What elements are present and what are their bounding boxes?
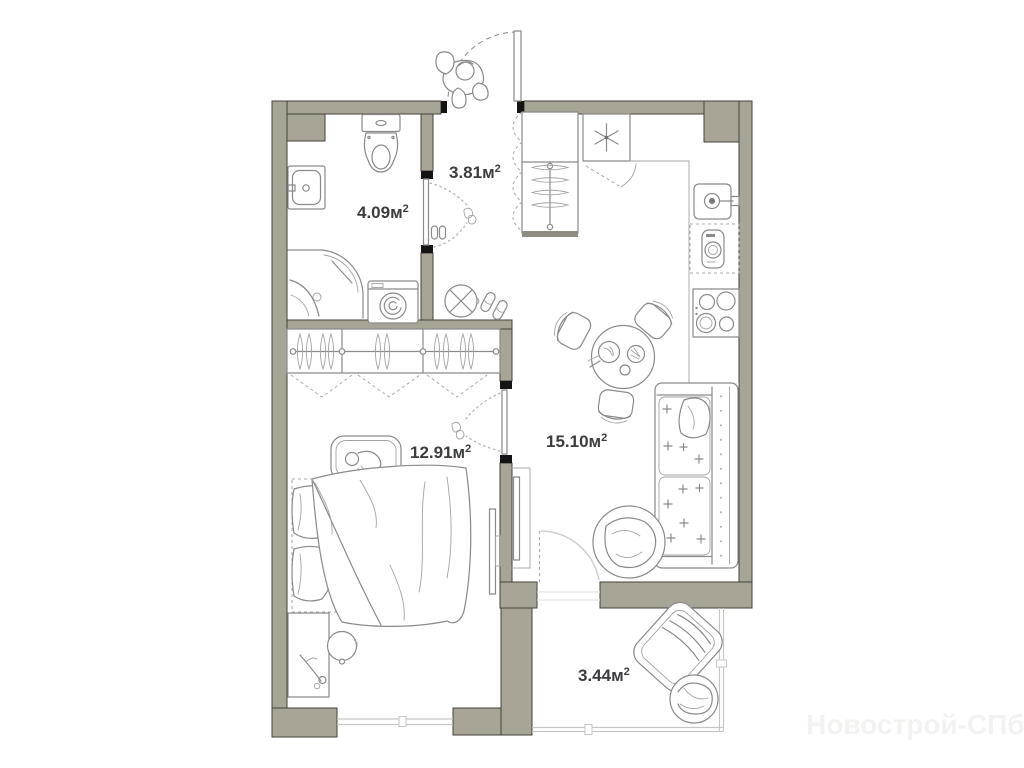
bathroom-door	[424, 179, 477, 247]
stool-icon	[445, 285, 479, 317]
double-bed-icon	[292, 465, 471, 626]
closet-doors	[513, 112, 522, 231]
wardrobe-icon	[287, 329, 500, 397]
bed-blanket	[312, 465, 471, 626]
kitchen-sink-icon	[694, 184, 739, 219]
washing-machine-icon	[368, 281, 418, 323]
hallway-area-label: 3.81м2	[449, 163, 501, 182]
dining-chair	[549, 307, 593, 352]
entrance-door-leaf	[514, 31, 521, 101]
bathroom-door-leaf	[424, 179, 429, 245]
wardrobe-folding-doors	[291, 375, 487, 397]
person-arm-left	[436, 52, 454, 74]
sofa-icon	[655, 383, 738, 568]
balcony-door	[537, 531, 600, 600]
slippers-icon	[479, 291, 508, 321]
floor-plan-page: 4.09м2 3.81м2 12.91м2 15.10м2 3.44м2 Нов…	[0, 0, 1024, 768]
sofa-pillow	[679, 398, 710, 438]
tv-bedroom-icon	[490, 509, 501, 594]
shoes-icon	[464, 208, 476, 224]
bathroom-area-label: 4.09м2	[357, 203, 409, 222]
bathroom-sink-icon	[288, 166, 325, 209]
entry-jamb-right	[517, 101, 524, 113]
toilet-icon	[362, 115, 400, 173]
bedroom-area-label: 12.91м2	[410, 443, 471, 462]
person-icon	[436, 52, 488, 108]
entry-jamb-left	[441, 101, 447, 113]
dining-chair	[597, 389, 635, 425]
watermark: Новострой-СПб	[806, 709, 1024, 740]
dining-table-icon	[588, 326, 655, 389]
floor-plan-image: 4.09м2 3.81м2 12.91м2 15.10м2 3.44м2 Нов…	[0, 0, 1024, 768]
balcony-area-label: 3.44м2	[578, 666, 630, 685]
dishwasher-icon	[690, 224, 739, 273]
shoes-icon	[452, 422, 464, 439]
stove-icon	[693, 289, 739, 337]
shower-icon	[288, 250, 363, 318]
pouf-icon	[670, 675, 718, 723]
side-table-icon	[328, 632, 358, 665]
living-kitchen-area-label: 15.10м2	[546, 432, 607, 451]
nightstand-icon	[288, 613, 329, 697]
hall-closet-icon	[513, 112, 578, 237]
bedroom-door-leaf	[502, 390, 507, 454]
refrigerator-icon	[583, 114, 636, 187]
bedroom-window	[337, 717, 453, 727]
round-armchair-icon	[593, 506, 665, 578]
person-arm-right	[473, 83, 489, 100]
